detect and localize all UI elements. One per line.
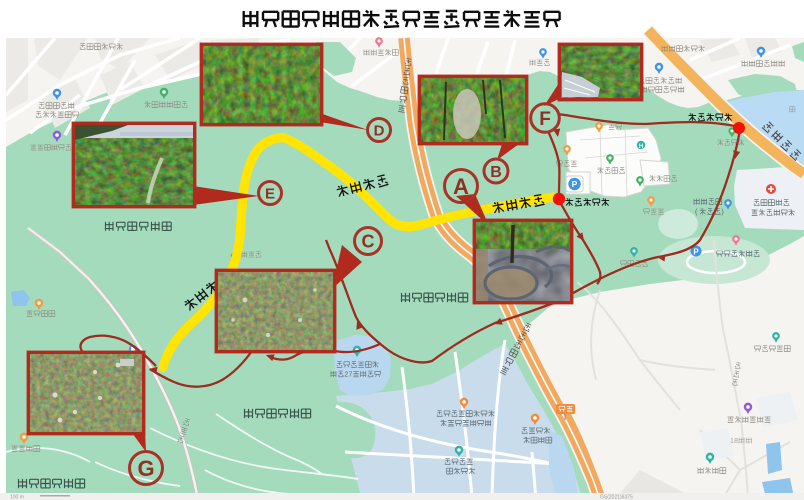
svg-text:A: A — [453, 174, 469, 199]
svg-text:C: C — [362, 231, 375, 251]
svg-text:): ) — [721, 207, 723, 216]
svg-text:E: E — [265, 185, 275, 202]
svg-text:F: F — [539, 109, 551, 130]
svg-text:7: 7 — [349, 372, 353, 379]
svg-text:P: P — [572, 179, 578, 189]
svg-text:B: B — [490, 164, 502, 181]
svg-text:G: G — [137, 456, 154, 481]
svg-text:D: D — [374, 122, 385, 139]
svg-text:8: 8 — [734, 438, 738, 445]
svg-text:H: H — [639, 144, 643, 150]
svg-text:GS(2021)6375: GS(2021)6375 — [600, 495, 633, 500]
svg-text:P: P — [693, 248, 699, 257]
svg-text:100 m: 100 m — [10, 495, 24, 500]
